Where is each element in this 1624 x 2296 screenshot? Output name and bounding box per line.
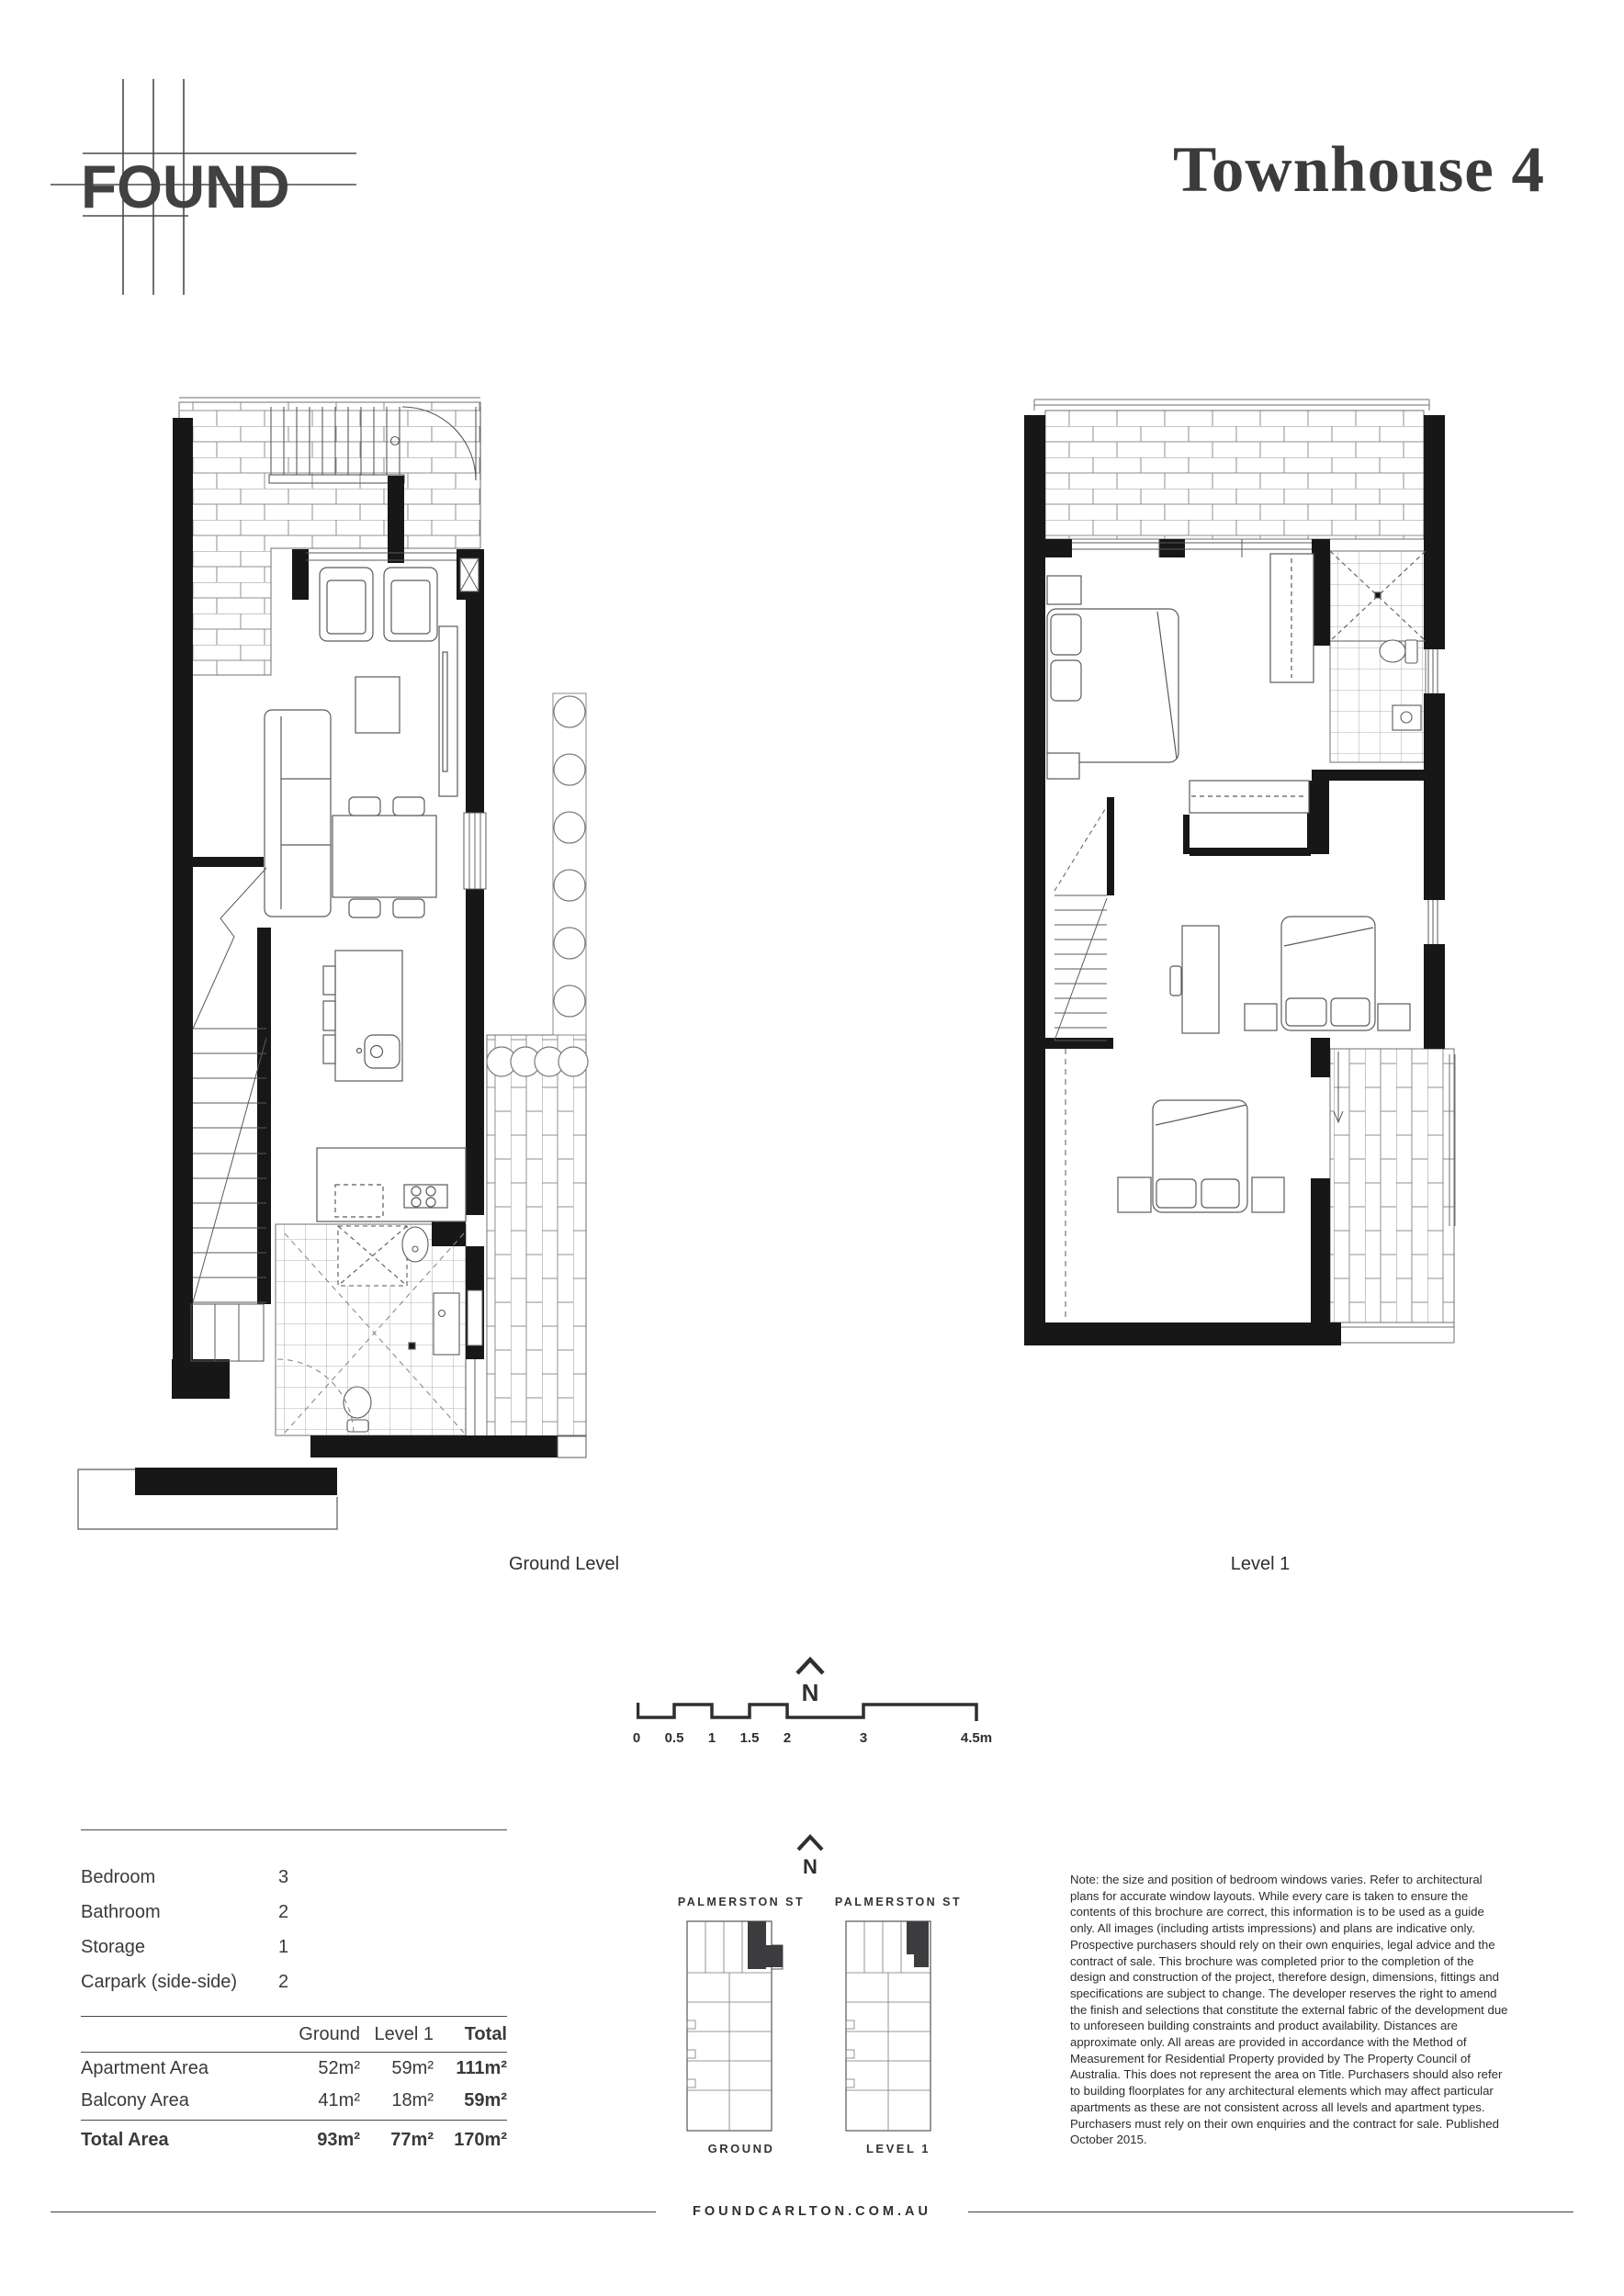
internal-stair [191,868,266,1361]
page-title: Townhouse 4 [1173,138,1545,203]
area-value: 41m² [276,2085,360,2117]
feature-label: Bathroom [81,1895,278,1930]
highlighted-unit [907,1921,929,1967]
footer: FOUNDCARLTON.COM.AU [51,2204,1573,2219]
level1-plan-label: Level 1 [1159,1554,1361,1575]
highlighted-unit [748,1921,783,1969]
feature-summary-table: Bedroom 3 Bathroom 2 Storage 1 Carpark (… [81,1829,507,1999]
column-header: Total [434,2017,507,2052]
feature-label: Storage [81,1930,278,1964]
scale-bar [637,1697,980,1723]
area-value: 52m² [276,2053,360,2085]
ground-furniture [265,568,466,1221]
north-label: N [803,1855,818,1878]
table-row: Balcony Area 41m² 18m² 59m² [81,2085,507,2117]
feature-label: Bedroom [81,1860,278,1895]
scale-tick: 4.5m [961,1730,992,1746]
area-value: 59m² [434,2085,507,2117]
scale-tick: 2 [784,1730,791,1746]
scale-tick: 1 [708,1730,716,1746]
scale-bar-labels: 0 0.5 1 1.5 2 3 4.5m [637,1730,978,1750]
scale-tick: 0 [633,1730,640,1746]
table-row: Bedroom 3 [81,1860,507,1895]
area-value: 111m² [434,2053,507,2085]
street-label-left: PALMERSTON ST [663,1896,819,1908]
ground-floor-plan [73,395,592,1534]
ground-plan-label: Ground Level [463,1554,665,1575]
scale-tick: 0.5 [665,1730,684,1746]
terrace-paving [487,693,588,1436]
feature-value: 2 [278,1895,507,1930]
table-row: Bathroom 2 [81,1895,507,1930]
feature-value: 1 [278,1930,507,1964]
footer-rule-right [968,2212,1573,2212]
key-plan-level1 [840,1918,956,2136]
table-row: Apartment Area 52m² 59m² 111m² [81,2053,507,2085]
disclaimer-note: Note: the size and position of bedroom w… [1070,1872,1509,2148]
key-plan-caption-level1: LEVEL 1 [820,2142,976,2155]
street-label-right: PALMERSTON ST [820,1896,976,1908]
area-table-header: Ground Level 1 Total [81,2017,507,2053]
scale-tick: 3 [860,1730,867,1746]
area-label: Balcony Area [81,2085,276,2117]
area-value: 93m² [276,2121,360,2159]
total-row: Total Area 93m² 77m² 170m² [81,2120,507,2159]
brand-logo: FOUND [81,156,290,217]
level1-stair [1054,806,1343,1318]
area-label: Apartment Area [81,2053,276,2085]
footer-url[interactable]: FOUNDCARLTON.COM.AU [693,2204,931,2219]
north-arrow-icon: N [794,1833,827,1879]
column-header: Ground [276,2017,360,2052]
table-row: Storage 1 [81,1930,507,1964]
area-table: Ground Level 1 Total Apartment Area 52m²… [81,2016,507,2159]
key-plan-ground [682,1918,797,2136]
column-header: Level 1 [360,2017,434,2052]
feature-value: 3 [278,1860,507,1895]
key-plan-caption-ground: GROUND [663,2142,819,2155]
table-row: Carpark (side-side) 2 [81,1964,507,1999]
level1-floor-plan [1021,395,1467,1350]
area-value: 77m² [360,2121,434,2159]
feature-value: 2 [278,1964,507,1999]
area-value: 170m² [434,2121,507,2159]
area-label: Total Area [81,2121,276,2159]
area-value: 18m² [360,2085,434,2117]
area-value: 59m² [360,2053,434,2085]
feature-label: Carpark (side-side) [81,1964,278,1999]
scale-tick: 1.5 [740,1730,760,1746]
terrace-edge [558,1435,586,1458]
footer-rule-left [51,2212,656,2212]
